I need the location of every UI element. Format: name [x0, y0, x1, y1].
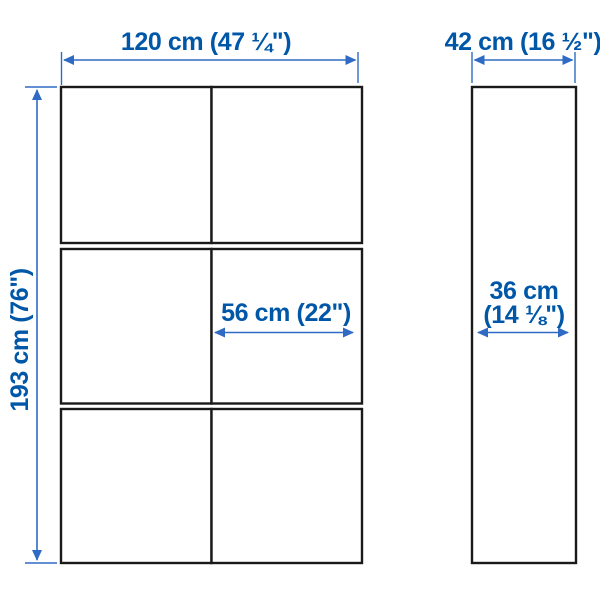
- overall-height-label: 193 cm (76"): [6, 268, 34, 411]
- front-panel: [61, 409, 212, 563]
- front-panel: [61, 87, 212, 243]
- front-panel: [212, 409, 363, 563]
- overall-depth-label: 42 cm (16 ½"): [445, 28, 600, 56]
- front-panel: [212, 87, 363, 243]
- door-width-label: 56 cm (22"): [221, 299, 351, 327]
- inner-depth-label-line2: (14 ⅛"): [483, 301, 564, 329]
- product-dimension-diagram: 120 cm (47 ¼") 193 cm (76") 56 cm (22") …: [0, 0, 600, 600]
- overall-width-label: 120 cm (47 ¼"): [121, 28, 291, 56]
- overall-depth-dimension: 42 cm (16 ½"): [445, 28, 600, 83]
- inner-depth-dimension: 36 cm (14 ⅛"): [478, 277, 568, 333]
- diagram-canvas: 120 cm (47 ¼") 193 cm (76") 56 cm (22") …: [0, 0, 600, 600]
- overall-height-dimension: 193 cm (76"): [6, 87, 57, 563]
- front-panel: [61, 249, 212, 404]
- overall-width-dimension: 120 cm (47 ¼"): [62, 28, 359, 85]
